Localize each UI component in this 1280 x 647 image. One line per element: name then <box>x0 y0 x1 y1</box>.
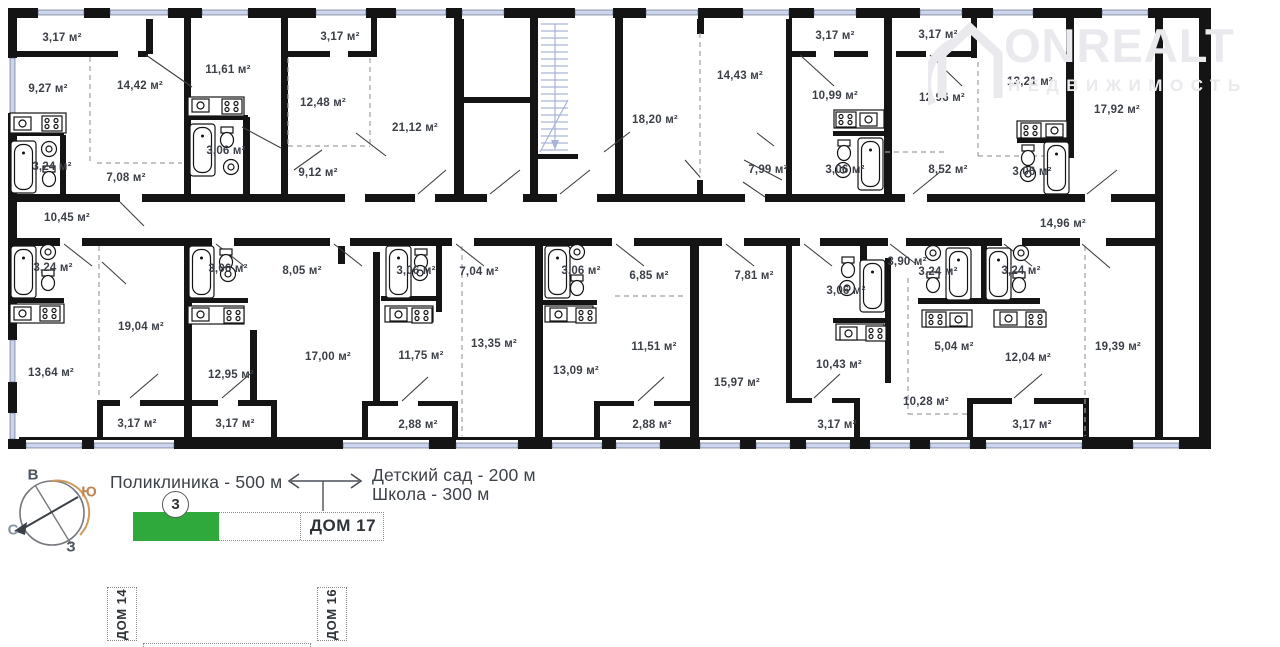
section-number-badge: 3 <box>162 491 189 518</box>
compass-label-south: Ю <box>81 484 96 501</box>
room-area-label: 3,17 м² <box>918 29 957 41</box>
room-area-label: 15,97 м² <box>714 377 760 389</box>
room-area-label: 3,06 м² <box>825 164 864 176</box>
room-area-label: 9,27 м² <box>28 83 67 95</box>
room-area-label: 17,00 м² <box>305 351 351 363</box>
room-area-label: 3,06 м² <box>206 145 245 157</box>
room-area-label: 3,17 м² <box>215 418 254 430</box>
amenities-block: Детский сад - 200 м Школа - 300 м <box>372 466 536 504</box>
compass-label-west: З <box>66 539 75 556</box>
room-area-label: 13,21 м² <box>1007 76 1053 88</box>
room-area-label: 12,96 м² <box>919 92 965 104</box>
school-distance-label: Школа - 300 м <box>372 485 536 504</box>
room-area-label: 2,88 м² <box>632 419 671 431</box>
room-area-label: 7,04 м² <box>459 266 498 278</box>
room-area-label: 13,64 м² <box>28 367 74 379</box>
direction-arrow-icon <box>283 469 367 513</box>
room-area-label: 9,12 м² <box>298 167 337 179</box>
room-area-label: 3,24 м² <box>33 262 72 274</box>
room-area-label: 7,08 м² <box>106 172 145 184</box>
room-area-label: 14,96 м² <box>1040 218 1086 230</box>
kindergarten-distance-label: Детский сад - 200 м <box>372 466 536 485</box>
room-area-label: 3,06 м² <box>826 285 865 297</box>
room-area-label: 3,06 м² <box>561 265 600 277</box>
room-area-label: 8,52 м² <box>928 164 967 176</box>
house-16-label: ДОМ 16 <box>325 588 340 639</box>
room-area-label: 6,85 м² <box>629 270 668 282</box>
room-area-label: 19,04 м² <box>118 321 164 333</box>
room-area-label: 18,20 м² <box>632 114 678 126</box>
room-area-label: 7,81 м² <box>734 270 773 282</box>
room-area-label: 3,06 м² <box>396 265 435 277</box>
room-area-label: 11,61 м² <box>205 64 250 76</box>
room-area-label: 11,75 м² <box>398 350 443 362</box>
house-14-box: ДОМ 14 <box>107 587 137 641</box>
room-area-label: 13,35 м² <box>471 338 517 350</box>
room-area-label: 19,39 м² <box>1095 341 1141 353</box>
room-area-label: 12,04 м² <box>1005 352 1051 364</box>
room-area-label: 3,17 м² <box>1012 419 1051 431</box>
room-area-label: 3,06 м² <box>208 263 247 275</box>
compass-icon <box>10 461 102 561</box>
room-area-label: 3,17 м² <box>815 30 854 42</box>
room-area-label: 10,45 м² <box>44 212 90 224</box>
room-area-label: 12,95 м² <box>208 369 254 381</box>
room-area-label: 13,09 м² <box>553 365 599 377</box>
floor-plan: ONREALT НЕДВИЖИМОСТЬ 3,17 м²9,27 м²14,42… <box>0 0 1280 455</box>
room-area-label: 10,28 м² <box>903 396 949 408</box>
compass-label-north: С <box>8 522 19 539</box>
room-area-label: 3,24 м² <box>918 266 957 278</box>
room-area-label: 21,12 м² <box>392 122 438 134</box>
room-area-label: 3,06 м² <box>1012 166 1051 178</box>
clinic-distance-label: Поликлиника - 500 м <box>110 472 282 493</box>
room-area-label: 12,48 м² <box>300 97 346 109</box>
room-area-label: 3,17 м² <box>320 31 359 43</box>
room-area-label: 3,17 м² <box>817 419 856 431</box>
staircase <box>540 20 568 154</box>
floorplan-page: ONREALT НЕДВИЖИМОСТЬ 3,17 м²9,27 м²14,42… <box>0 0 1280 647</box>
room-area-label: 14,43 м² <box>717 70 763 82</box>
room-area-label: 3,17 м² <box>42 32 81 44</box>
room-area-label: 17,92 м² <box>1094 104 1140 116</box>
room-area-label: 3,24 м² <box>1001 265 1040 277</box>
room-area-label: 10,43 м² <box>816 359 862 371</box>
room-area-label: 14,42 м² <box>117 80 163 92</box>
room-area-label: 3,24 м² <box>32 161 71 173</box>
room-area-label: 3,17 м² <box>117 418 156 430</box>
room-area-label: 5,04 м² <box>934 341 973 353</box>
legend: В Ю С З Поликлиника - 500 м Детский сад … <box>0 455 1280 647</box>
house-17-label: ДОМ 17 <box>301 513 385 539</box>
room-area-label: 10,99 м² <box>812 90 858 102</box>
room-area-label: 7,99 м² <box>748 164 787 176</box>
room-area-label: 2,88 м² <box>398 419 437 431</box>
walls-layer <box>0 0 1280 455</box>
house-14-label: ДОМ 14 <box>115 588 130 639</box>
room-area-label: 8,05 м² <box>282 265 321 277</box>
house-16-box: ДОМ 16 <box>317 587 347 641</box>
adjacent-building-outline <box>143 643 311 647</box>
compass-label-east: В <box>28 467 39 484</box>
room-area-label: 11,51 м² <box>631 341 676 353</box>
